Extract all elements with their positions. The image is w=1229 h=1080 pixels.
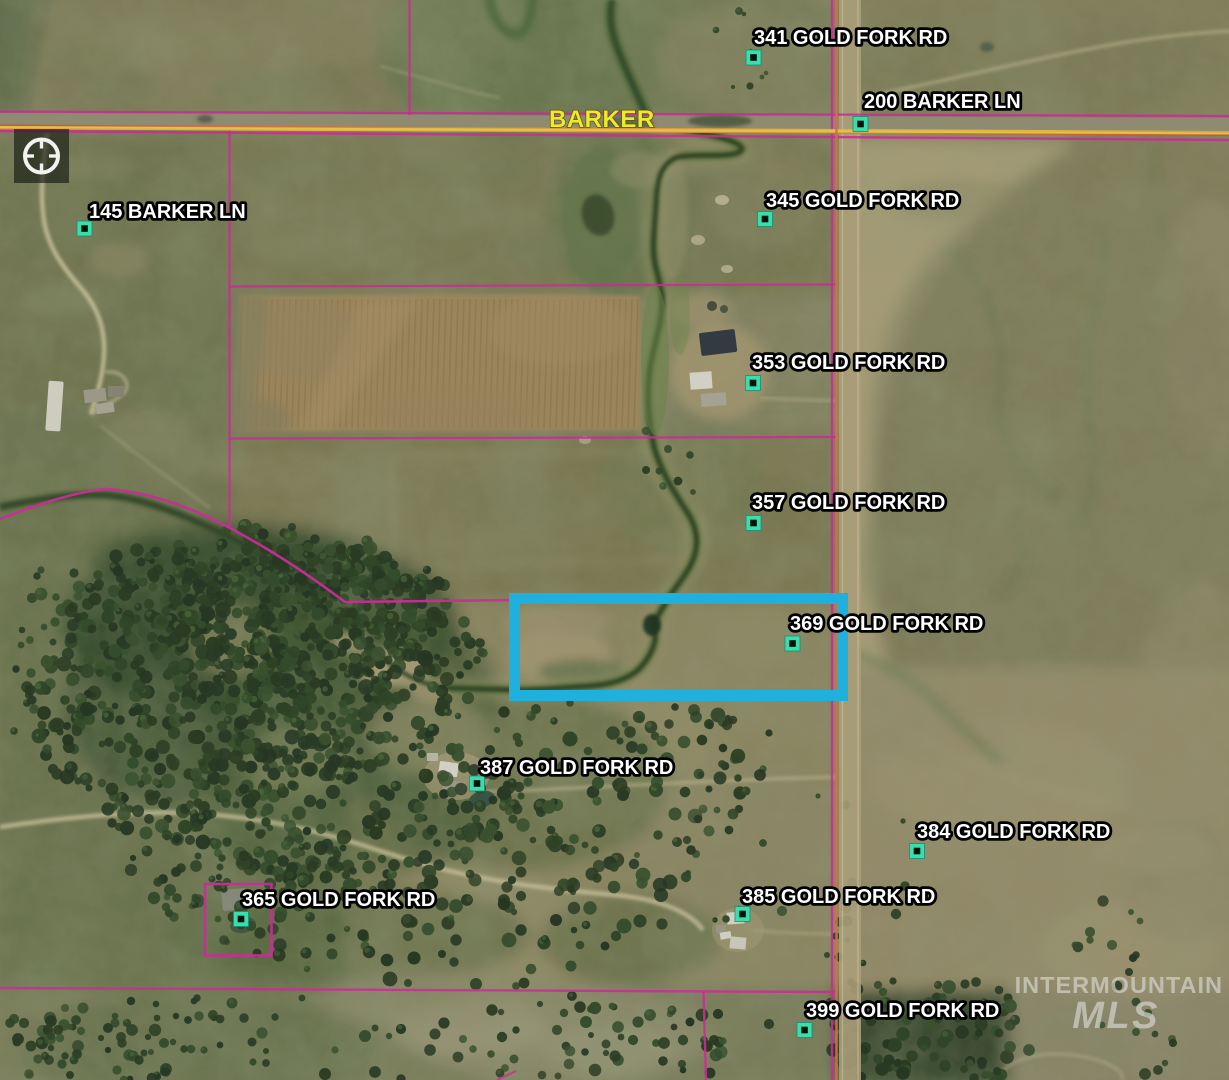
svg-text:345 GOLD FORK RD: 345 GOLD FORK RD: [766, 190, 959, 212]
svg-text:145 BARKER LN: 145 BARKER LN: [89, 201, 246, 223]
svg-text:365 GOLD FORK RD: 365 GOLD FORK RD: [242, 889, 435, 911]
svg-text:384 GOLD FORK RD: 384 GOLD FORK RD: [917, 821, 1110, 843]
svg-text:200 BARKER LN: 200 BARKER LN: [864, 91, 1021, 113]
svg-text:369 GOLD FORK RD: 369 GOLD FORK RD: [790, 613, 983, 635]
svg-text:399 GOLD FORK RD: 399 GOLD FORK RD: [806, 1000, 999, 1022]
svg-text:341 GOLD FORK RD: 341 GOLD FORK RD: [754, 27, 947, 49]
svg-text:353 GOLD FORK RD: 353 GOLD FORK RD: [752, 352, 945, 374]
svg-text:MLS: MLS: [1072, 995, 1160, 1037]
svg-text:BARKER: BARKER: [549, 106, 655, 133]
svg-text:387 GOLD FORK RD: 387 GOLD FORK RD: [480, 757, 673, 779]
svg-text:385 GOLD FORK RD: 385 GOLD FORK RD: [742, 886, 935, 908]
svg-text:357 GOLD FORK RD: 357 GOLD FORK RD: [752, 492, 945, 514]
